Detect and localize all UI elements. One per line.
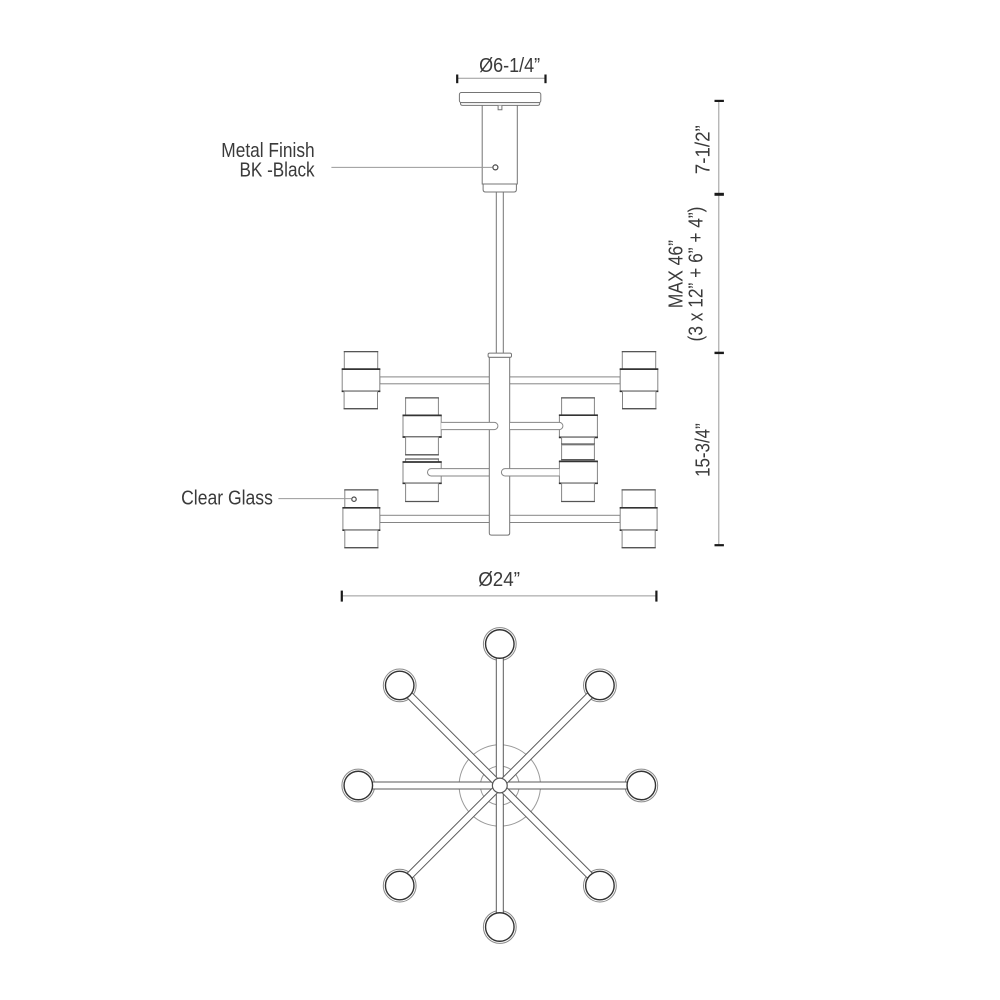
svg-text:BK -Black: BK -Black: [240, 159, 316, 181]
svg-text:Ø6-1/4”: Ø6-1/4”: [479, 55, 540, 77]
svg-text:7-1/2”: 7-1/2”: [693, 125, 715, 174]
svg-text:Ø24”: Ø24”: [478, 569, 520, 591]
svg-text:Clear Glass: Clear Glass: [181, 488, 273, 510]
svg-text:(3 x 12” + 6” + 4”): (3 x 12” + 6” + 4”): [686, 207, 708, 342]
svg-text:MAX 46”: MAX 46”: [666, 240, 688, 308]
svg-text:15-3/4”: 15-3/4”: [693, 423, 715, 477]
